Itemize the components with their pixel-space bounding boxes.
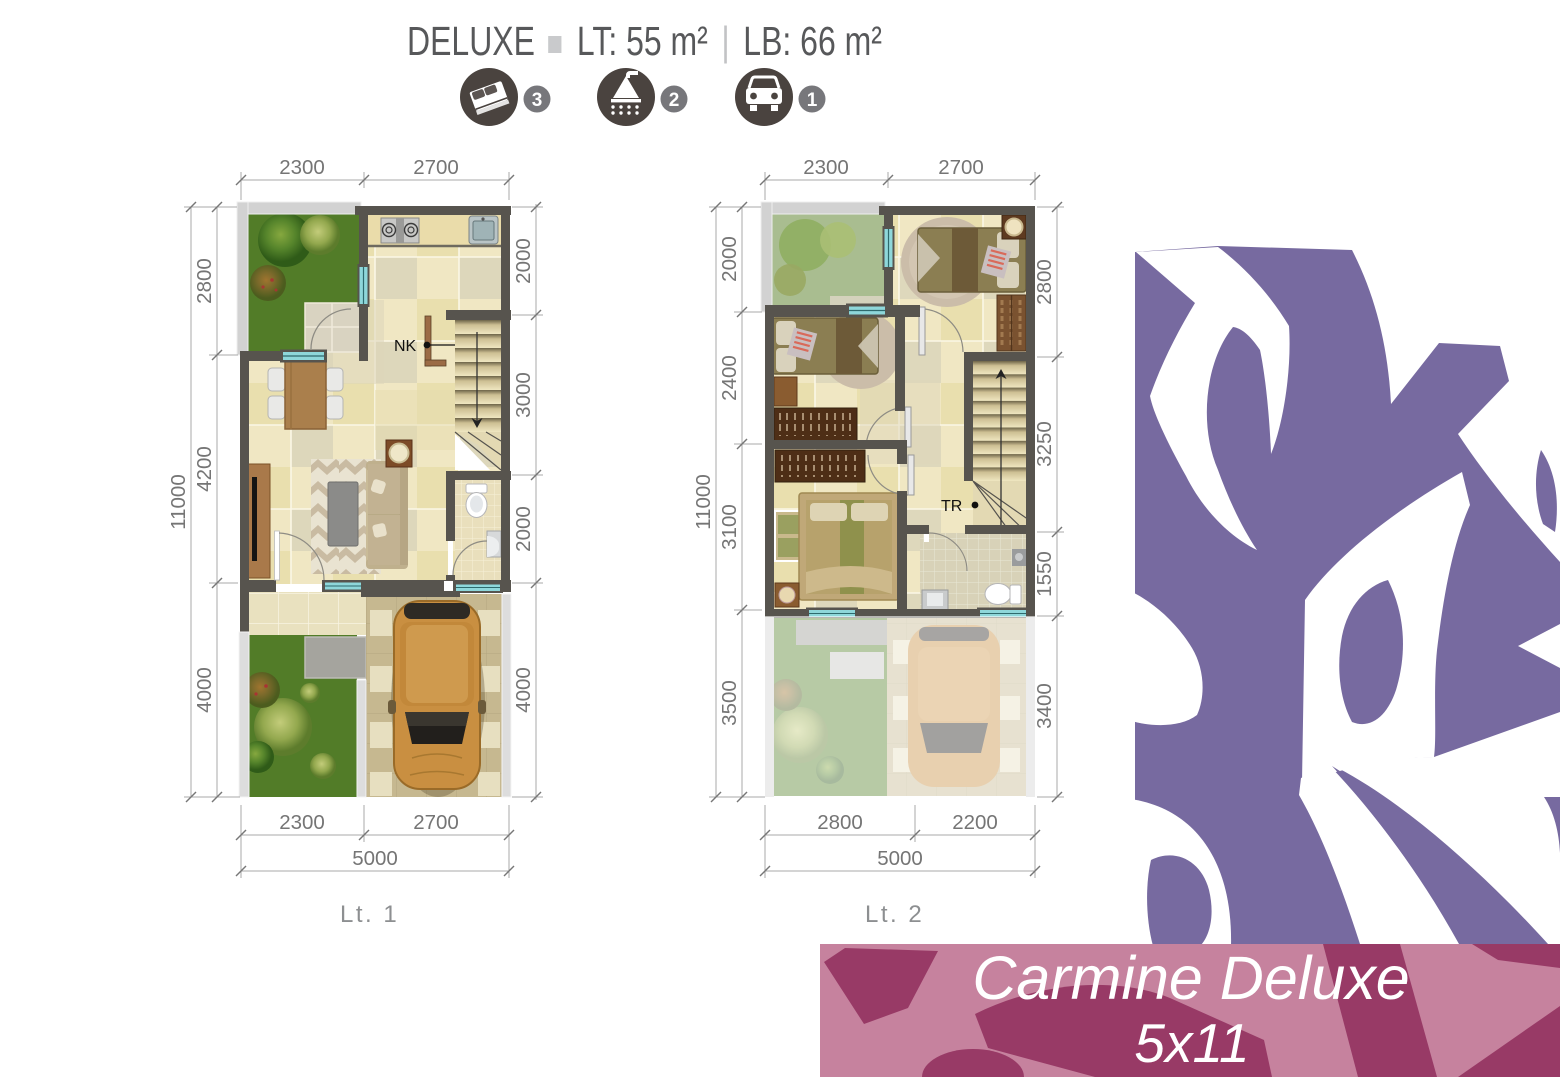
svg-text:2800: 2800 <box>193 258 216 304</box>
svg-text:5000: 5000 <box>877 847 923 870</box>
svg-text:3500: 3500 <box>718 680 741 726</box>
svg-text:2: 2 <box>669 90 680 111</box>
svg-text:4000: 4000 <box>193 667 216 713</box>
svg-text:1550: 1550 <box>1033 551 1056 597</box>
svg-text:11000: 11000 <box>170 474 190 529</box>
svg-text:2000: 2000 <box>512 238 535 284</box>
svg-text:2800: 2800 <box>1033 259 1056 305</box>
svg-text:TR: TR <box>941 498 962 515</box>
svg-text:4200: 4200 <box>193 446 216 492</box>
svg-text:1: 1 <box>807 90 818 111</box>
svg-text:5x11: 5x11 <box>1134 1012 1249 1074</box>
svg-text:3400: 3400 <box>1033 683 1056 729</box>
svg-text:11000: 11000 <box>692 474 715 529</box>
svg-text:2700: 2700 <box>938 160 984 179</box>
svg-text:2400: 2400 <box>718 355 741 401</box>
svg-text:2300: 2300 <box>803 160 849 179</box>
svg-text:3250: 3250 <box>1033 421 1056 467</box>
svg-text:Carmine Deluxe: Carmine Deluxe <box>972 944 1409 1012</box>
svg-text:2200: 2200 <box>952 811 998 834</box>
svg-text:2800: 2800 <box>817 811 863 834</box>
svg-text:3100: 3100 <box>718 504 741 550</box>
svg-text:3000: 3000 <box>512 372 535 418</box>
svg-text:2000: 2000 <box>718 236 741 282</box>
svg-text:2300: 2300 <box>279 160 325 179</box>
svg-text:NK: NK <box>394 338 417 355</box>
svg-text:5000: 5000 <box>352 847 398 870</box>
svg-text:3: 3 <box>532 90 543 111</box>
svg-text:4000: 4000 <box>512 667 535 713</box>
svg-text:2000: 2000 <box>512 506 535 552</box>
svg-text:2700: 2700 <box>413 811 459 834</box>
svg-text:2700: 2700 <box>413 160 459 179</box>
svg-text:2300: 2300 <box>279 811 325 834</box>
